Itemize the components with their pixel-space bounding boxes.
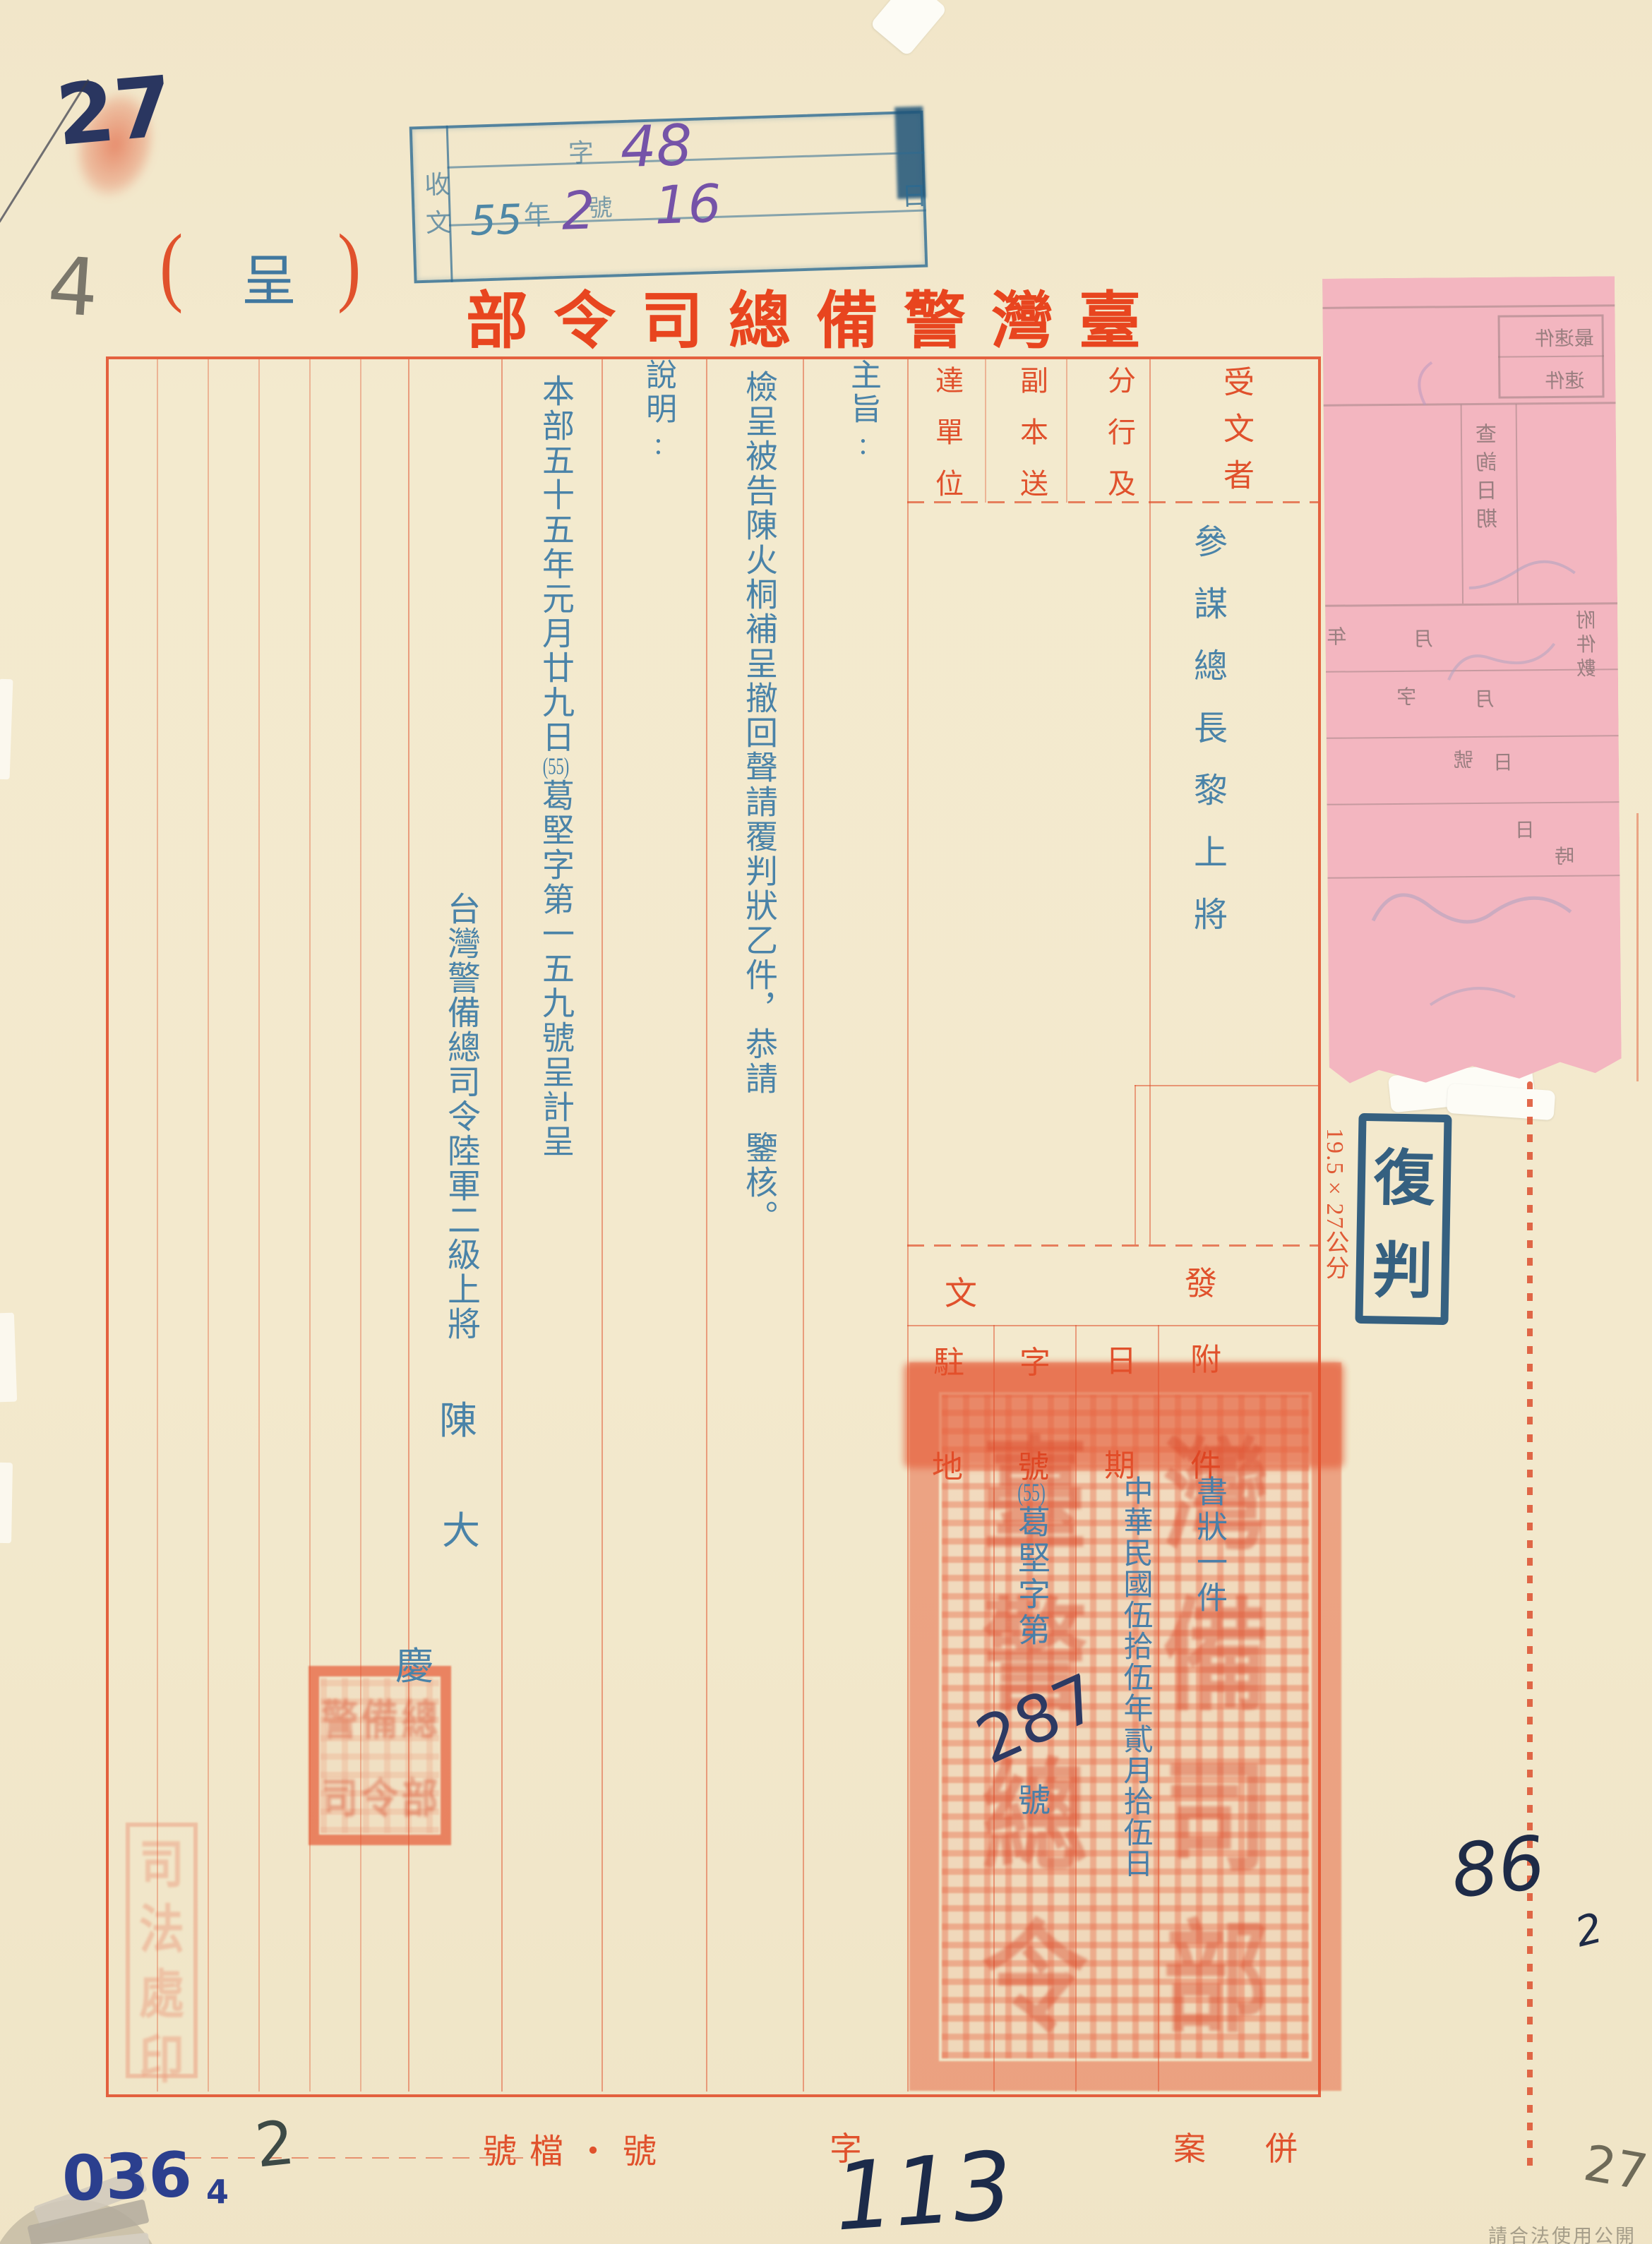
received-stamp-zi-label: 字 [568, 132, 594, 169]
edge-tear-2 [0, 1313, 17, 1403]
handwritten-bottom-right-pencil: 27 [1580, 2134, 1652, 2202]
issue-header-fa: 發 [1185, 1258, 1217, 1304]
torn-paper-bit-2 [1447, 1084, 1556, 1121]
signature-title: 台灣警備總司令陸軍二級上將 [436, 892, 485, 2092]
footer-watermark-text: 請合法使用公開之影像 [1488, 2221, 1652, 2244]
merge-case-label-left: 案 [1173, 2123, 1206, 2170]
square-seal-script: 警備總 司令部 [320, 1677, 440, 1834]
received-stamp-day-label: 日 [901, 176, 928, 213]
paren-close: ) [337, 215, 361, 316]
scanned-document-page: 27 4 ( 呈 ) 收文 字 號 日 48 2 16 55 年 部令司總備警灣… [0, 0, 1652, 2244]
document-type-mark: 呈 [241, 237, 297, 316]
square-official-seal: 警備總 司令部 [309, 1666, 451, 1845]
fupan-char-bottom: 判 [1372, 1220, 1434, 1309]
archive-number-stamp-sub: 4 [206, 2173, 229, 2211]
distribution-label-2: 副本送 [1011, 366, 1052, 520]
pencil-number-4: 4 [45, 240, 102, 335]
paren-open: ( [160, 215, 183, 316]
pink-slip-back-content: 最速件 速件 查詢日期 年 月 字 號 月 日 日 時 附件數 [1322, 276, 1622, 1084]
explanation-text-after: 葛堅字第一五九號呈計呈 [538, 779, 574, 1159]
explanation-year-combined: (55) [543, 755, 569, 779]
issue-number-text: 葛堅字第 [1014, 1505, 1050, 1649]
fupan-char-top: 復 [1373, 1128, 1435, 1217]
explanation-text: 本部五十五年元月廿九日(55)葛堅字第一五九號呈計呈 [532, 374, 579, 1998]
agency-title: 部令司總備警灣臺 [466, 271, 1166, 361]
merge-case-label-right: 併 [1265, 2123, 1298, 2170]
handwritten-margin-number: 86 [1447, 1819, 1549, 1914]
subject-text: 檢呈被告陳火桐補呈撤回聲請覆判狀乙件，恭請 鑒核。 [736, 370, 782, 1993]
edge-tear-1 [0, 679, 13, 780]
perforation-dotted-line [1527, 1081, 1533, 2174]
archive-number-stamp: 036 [61, 2138, 193, 2215]
handwritten-received-day: 16 [654, 174, 722, 236]
handwritten-received-month: 2 [561, 180, 596, 241]
signature-name-char-3: 慶 [395, 1635, 433, 1691]
handwritten-top-left-number: 27 [52, 57, 176, 164]
faint-rect-seal: 司法 處印 [126, 1823, 198, 2078]
handwritten-bottom-left-pencil: 2 [252, 2107, 298, 2181]
right-margin-line [1636, 813, 1639, 1081]
handwritten-received-no: 48 [619, 112, 693, 180]
pink-slip-scribbles [1322, 276, 1622, 1084]
pink-routing-slip: 最速件 速件 查詢日期 年 月 字 號 月 日 日 時 附件數 [1322, 276, 1622, 1084]
received-stamp-side-label: 收文 [417, 171, 455, 248]
issue-date-value: 中華民國伍拾伍年貳月拾伍日 [1114, 1475, 1157, 2040]
distribution-label-1: 分行及 [1099, 366, 1139, 520]
distribution-label-3: 達單位 [926, 366, 967, 520]
handwritten-received-year: 55 [469, 196, 523, 245]
received-stamp: 收文 字 號 日 48 2 16 55 年 [409, 111, 928, 284]
issue-attachment-value: 書狀一件 [1186, 1475, 1231, 1616]
recipient-label: 受文者 [1213, 366, 1258, 505]
signature-name-char-1: 陳 [439, 1389, 477, 1445]
received-year-suffix: 年 [523, 193, 551, 232]
issue-number-year: (55) [1017, 1480, 1046, 1505]
explanation-label: 說明: [635, 359, 681, 464]
issue-number-suffix: 號 [1014, 1783, 1050, 1819]
size-note: 19.5×27公分 [1317, 1128, 1352, 1281]
explanation-text-before: 本部五十五年元月廿九日 [538, 374, 574, 755]
fupan-stamp: 復 判 [1355, 1113, 1452, 1325]
handwritten-file-number: 113 [831, 2131, 1016, 2244]
signature-name-char-2: 大 [442, 1499, 480, 1555]
torn-paper-bit-3 [870, 0, 947, 56]
subject-label: 主旨: [840, 359, 885, 464]
archive-number-label: 號檔・號 [483, 2123, 669, 2173]
edge-tear-3 [0, 1463, 13, 1543]
recipient-value: 參謀總長黎上將 [1182, 524, 1231, 959]
issue-header-wen: 文 [945, 1268, 977, 1314]
handwritten-margin-sub: 2 [1570, 1904, 1607, 1957]
